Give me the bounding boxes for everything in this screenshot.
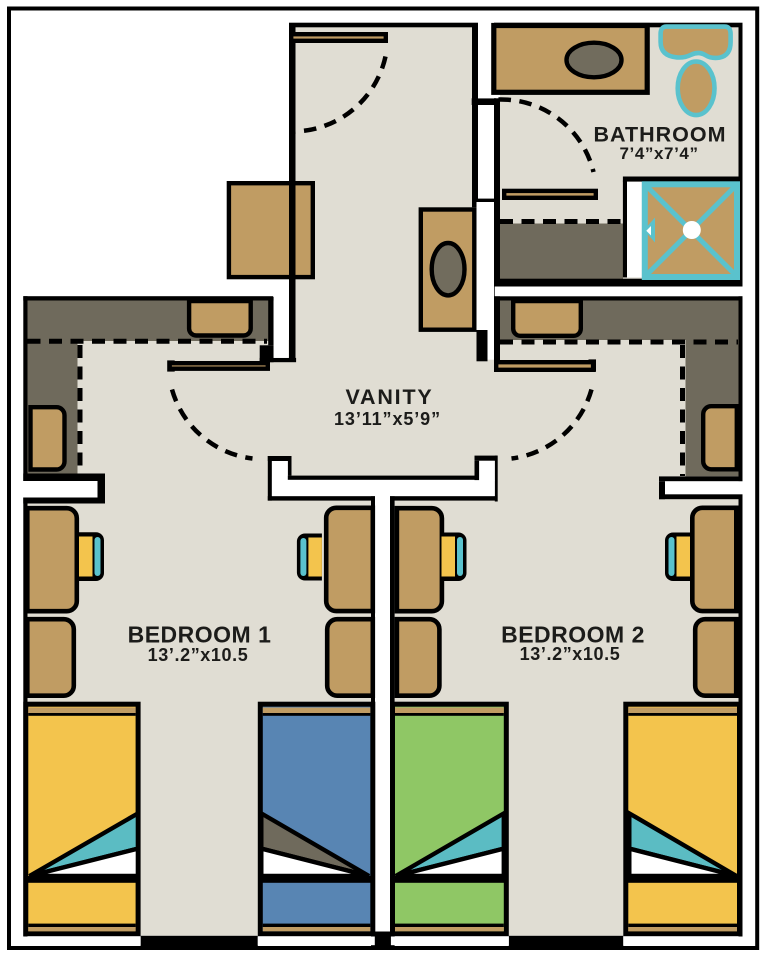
svg-text:7’4”x7’4”: 7’4”x7’4” [619,144,698,163]
svg-text:13’.2”x10.5: 13’.2”x10.5 [520,644,621,664]
svg-text:13’11”x5’9”: 13’11”x5’9” [334,409,441,429]
svg-text:13’.2”x10.5: 13’.2”x10.5 [148,645,249,665]
svg-text:VANITY: VANITY [345,385,433,409]
svg-text:BATHROOM: BATHROOM [593,123,726,147]
svg-text:BEDROOM 1: BEDROOM 1 [128,622,272,648]
